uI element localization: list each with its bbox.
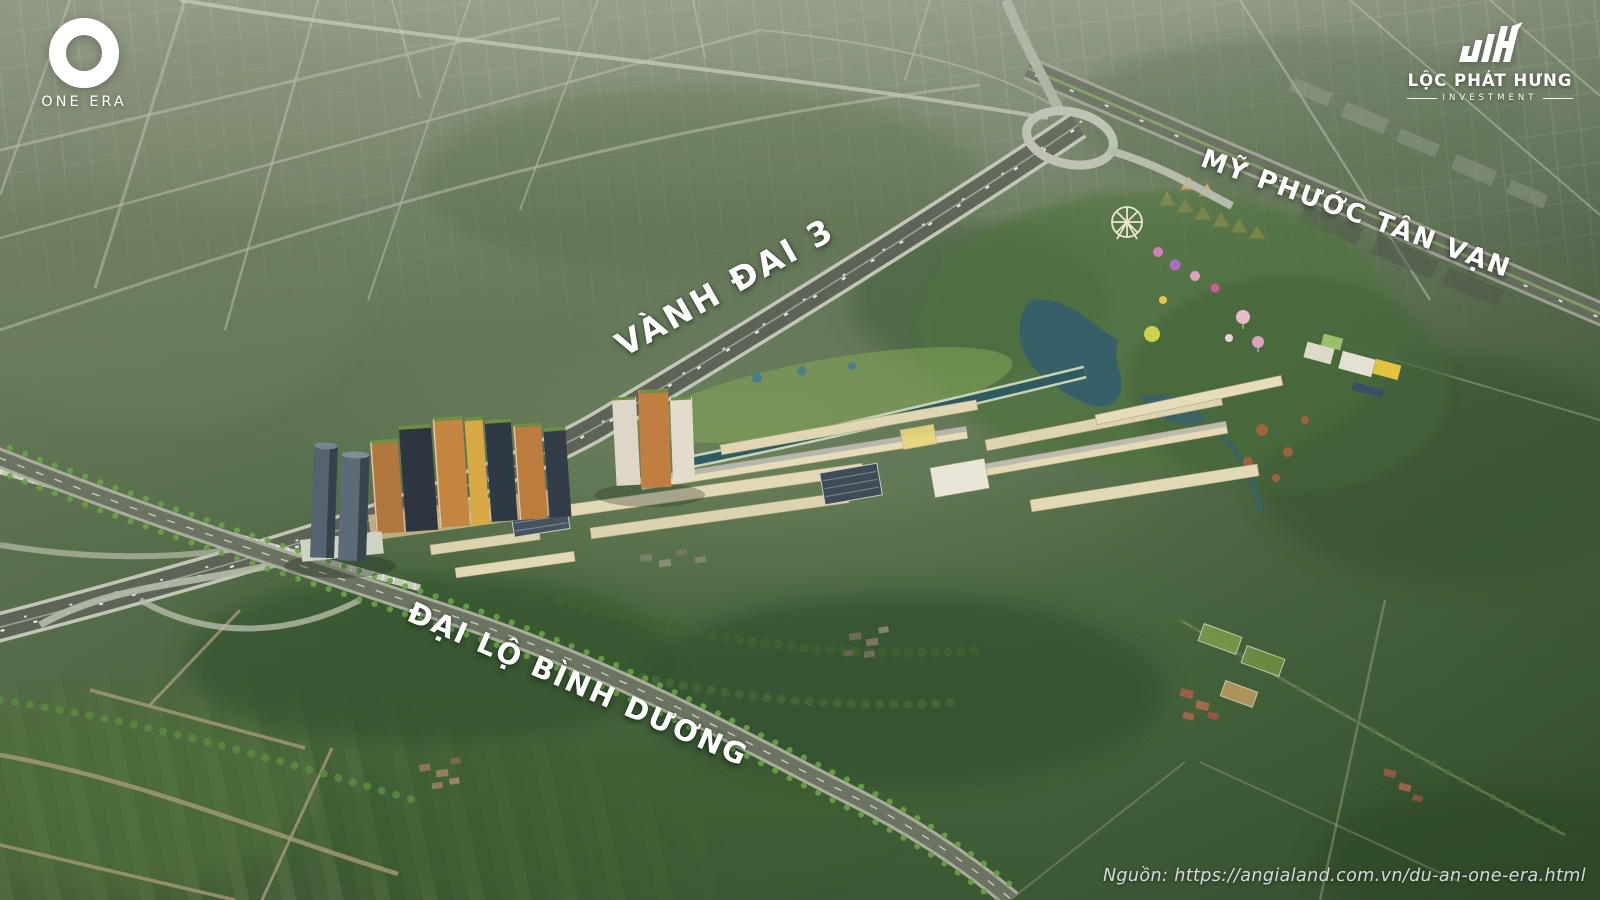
aerial-masterplan-render: ONE ERA LỘC PHÁT HƯNG INVESTMENT VÀNH ĐA… [0,0,1600,900]
subtitle-rule-left [1407,98,1437,99]
one-era-logo-text: ONE ERA [14,94,154,110]
loc-phat-hung-mark-icon [1457,22,1523,66]
source-attribution: Nguồn: https://angialand.com.vn/du-an-on… [1103,866,1586,886]
one-era-logo: ONE ERA [14,18,154,110]
subtitle-rule-right [1543,98,1573,99]
one-era-ring-icon [49,18,119,88]
loc-phat-hung-name: LỘC PHÁT HƯNG [1405,71,1575,90]
loc-phat-hung-subtitle-row: INVESTMENT [1405,93,1575,103]
loc-phat-hung-logo: LỘC PHÁT HƯNG INVESTMENT [1405,22,1575,103]
sports-courts [1198,624,1285,708]
scene-illustration [0,0,1600,900]
loc-phat-hung-subtitle: INVESTMENT [1443,93,1538,103]
